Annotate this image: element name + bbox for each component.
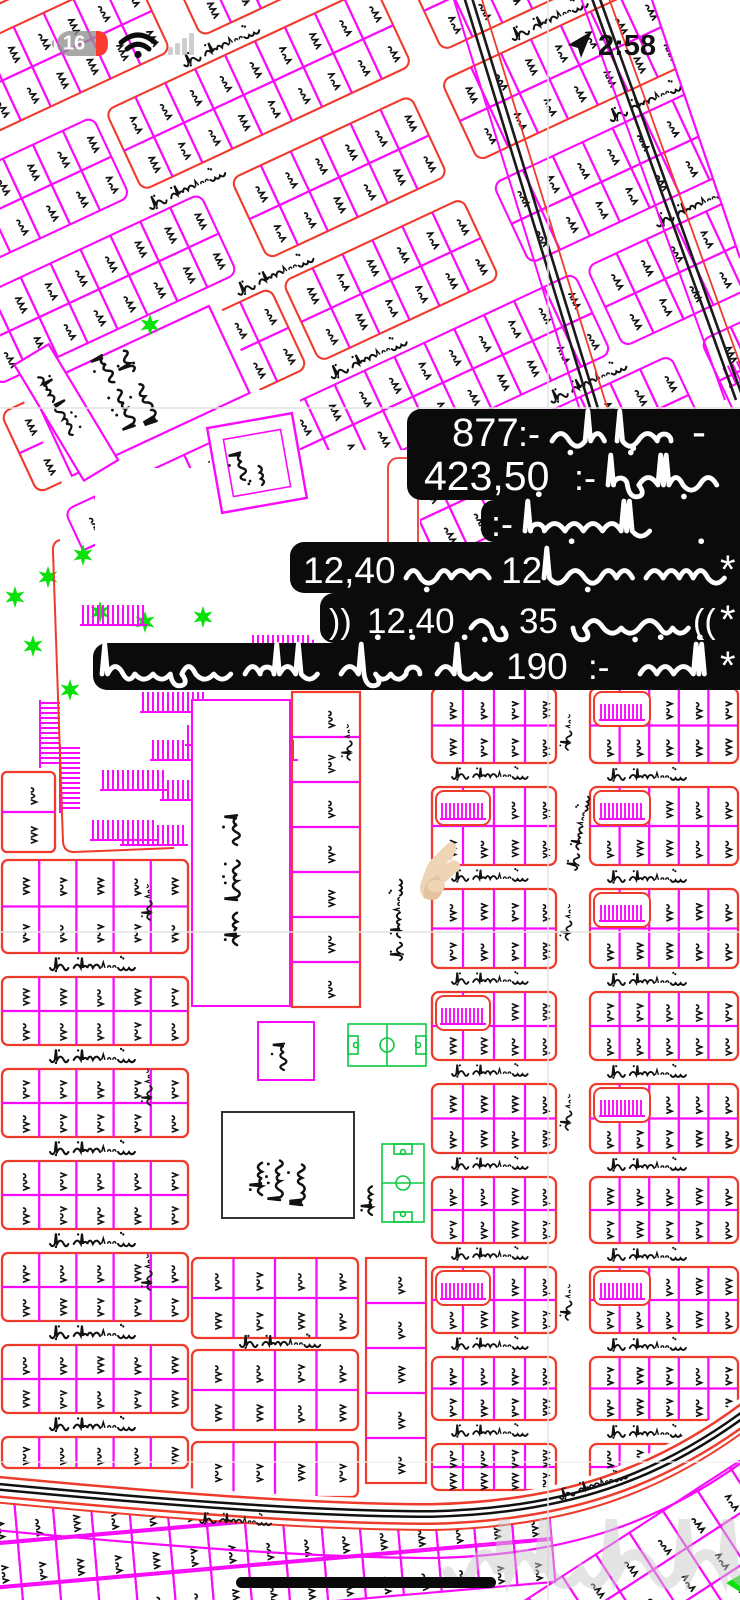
svg-text::-: :- (574, 457, 596, 498)
svg-text:2:58: 2:58 (598, 30, 656, 62)
svg-text::-: :- (491, 503, 513, 544)
svg-text::-: :- (518, 413, 540, 454)
svg-text:16: 16 (63, 33, 85, 55)
svg-text:*: * (720, 644, 736, 688)
svg-text:190: 190 (506, 646, 568, 687)
svg-text:877: 877 (452, 411, 519, 455)
svg-text:((: (( (693, 603, 716, 641)
svg-text::-: :- (588, 648, 609, 687)
svg-text:-: - (692, 408, 706, 455)
svg-text:12: 12 (501, 550, 542, 591)
svg-text:*: * (720, 598, 736, 642)
svg-text:12,40: 12,40 (303, 550, 396, 591)
svg-text:*: * (720, 548, 736, 592)
svg-text:423,50: 423,50 (424, 453, 549, 499)
svg-text:)): )) (329, 603, 352, 641)
svg-text:35: 35 (519, 602, 558, 641)
